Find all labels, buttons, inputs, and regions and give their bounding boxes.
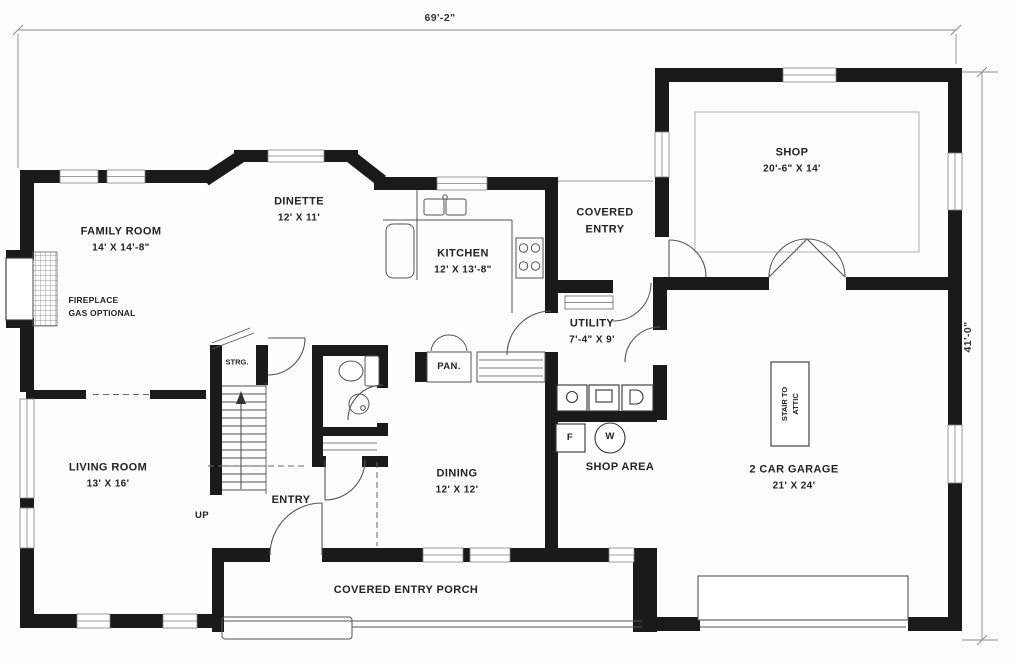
- room-label-utility: UTILITY 7'-4" X 9': [569, 315, 615, 347]
- storage-label: STRG.: [226, 356, 249, 367]
- shop-garage-double-door: [769, 239, 845, 277]
- window: [783, 68, 836, 82]
- garage-details: [695, 112, 919, 627]
- room-name: DINING: [436, 465, 479, 482]
- room-size: 12' X 13'-8": [434, 262, 492, 277]
- window: [77, 614, 110, 628]
- laundry-sink-icon: [557, 385, 587, 411]
- window: [948, 153, 962, 210]
- up-label: UP: [195, 509, 209, 523]
- room-size: 12' X 11': [274, 210, 324, 225]
- stair-up-arrow-icon: [236, 391, 246, 404]
- attic-stair-label: STAIR TO ATTIC: [779, 387, 802, 421]
- floor-plan-drawing: [0, 0, 1018, 664]
- range-icon: [516, 238, 543, 278]
- fireplace-note: FIREPLACE GAS OPTIONAL: [68, 294, 135, 320]
- garage-door: [698, 576, 908, 620]
- room-size: 21' X 24': [749, 478, 838, 493]
- up-text: UP: [195, 509, 209, 523]
- room-label-entry: ENTRY: [272, 492, 311, 509]
- hall-door: [268, 338, 305, 375]
- linen-door: [325, 460, 365, 500]
- room-label-family-room: FAMILY ROOM 14' X 14'-8": [81, 223, 162, 255]
- room-name: KITCHEN: [434, 245, 492, 262]
- pantry-double-door: [431, 335, 467, 351]
- room-label-living-room: LIVING ROOM 13' X 16': [69, 459, 147, 491]
- room-name: LIVING ROOM: [69, 459, 147, 476]
- room-name: COVERED: [576, 205, 633, 222]
- window: [268, 150, 324, 162]
- front-step: [222, 617, 352, 639]
- toilet-icon: [339, 356, 379, 386]
- room-label-dining: DINING 12' X 12': [436, 465, 479, 497]
- front-door: [270, 503, 322, 555]
- furnace-label: F: [567, 431, 573, 445]
- dryer-icon: [622, 385, 653, 411]
- shop-inner-outline: [695, 112, 919, 252]
- window: [423, 548, 463, 562]
- room-size: 7'-4" X 9': [569, 332, 615, 347]
- fireplace-note-line2: GAS OPTIONAL: [68, 307, 135, 320]
- window: [948, 425, 962, 483]
- storage-text: STRG.: [226, 356, 249, 367]
- room-name: UTILITY: [569, 315, 615, 332]
- shop-entry-door: [669, 240, 706, 277]
- kitchen-utility-door: [507, 311, 551, 355]
- window: [60, 170, 98, 183]
- room-name: COVERED ENTRY PORCH: [334, 582, 479, 599]
- furnace-text: F: [567, 431, 573, 445]
- counter-box: [477, 352, 545, 382]
- washer-icon: [589, 385, 619, 411]
- linen-shelves: [323, 443, 377, 450]
- floor-plan-page: FAMILY ROOM 14' X 14'-8" DINETTE 12' X 1…: [0, 0, 1018, 664]
- window: [163, 614, 197, 628]
- room-label-dinette: DINETTE 12' X 11': [274, 193, 324, 225]
- room-name: ENTRY: [576, 221, 633, 238]
- window: [20, 508, 34, 548]
- room-label-shop: SHOP 20'-6" X 14': [763, 144, 821, 176]
- room-name: SHOP AREA: [586, 459, 654, 476]
- room-size: 14' X 14'-8": [81, 240, 162, 255]
- pantry-label: PAN.: [437, 360, 461, 374]
- room-size: 20'-6" X 14': [763, 161, 821, 176]
- attic-stair-line1: STAIR TO: [779, 387, 790, 421]
- room-name: ENTRY: [272, 492, 311, 509]
- refrigerator-icon: [386, 224, 414, 278]
- water-heater-label: W: [605, 430, 614, 444]
- utility-garage-door: [625, 327, 660, 362]
- room-name: DINETTE: [274, 193, 324, 210]
- window: [655, 132, 669, 177]
- room-label-covered-entry: COVERED ENTRY: [576, 205, 633, 238]
- fireplace-icon: [6, 250, 57, 328]
- room-name: FAMILY ROOM: [81, 223, 162, 240]
- window: [609, 548, 634, 562]
- dimension-height-text: 41'-0": [961, 322, 977, 353]
- room-size: 12' X 12': [436, 482, 479, 497]
- pantry-and-counter: [427, 335, 545, 382]
- pantry-text: PAN.: [437, 360, 461, 374]
- room-label-kitchen: KITCHEN 12' X 13'-8": [434, 245, 492, 277]
- room-label-shop-area: SHOP AREA: [586, 459, 654, 476]
- dimension-width-label: 69'-2": [425, 11, 456, 27]
- room-label-garage: 2 CAR GARAGE 21' X 24': [749, 461, 838, 493]
- room-label-porch: COVERED ENTRY PORCH: [334, 582, 479, 599]
- room-name: SHOP: [763, 144, 821, 161]
- window: [107, 170, 145, 183]
- dimension-height-label: 41'-0": [961, 322, 977, 353]
- dimension-width-text: 69'-2": [425, 11, 456, 27]
- window: [20, 399, 34, 498]
- covered-entry-utility-door: [613, 283, 651, 321]
- window: [470, 548, 510, 562]
- room-name: 2 CAR GARAGE: [749, 461, 838, 478]
- kitchen-sink-icon: [424, 195, 466, 215]
- window: [437, 177, 487, 190]
- attic-stair-line2: ATTIC: [790, 387, 801, 421]
- room-size: 13' X 16': [69, 476, 147, 491]
- water-heater-text: W: [605, 430, 614, 444]
- fireplace-note-line1: FIREPLACE: [68, 294, 135, 307]
